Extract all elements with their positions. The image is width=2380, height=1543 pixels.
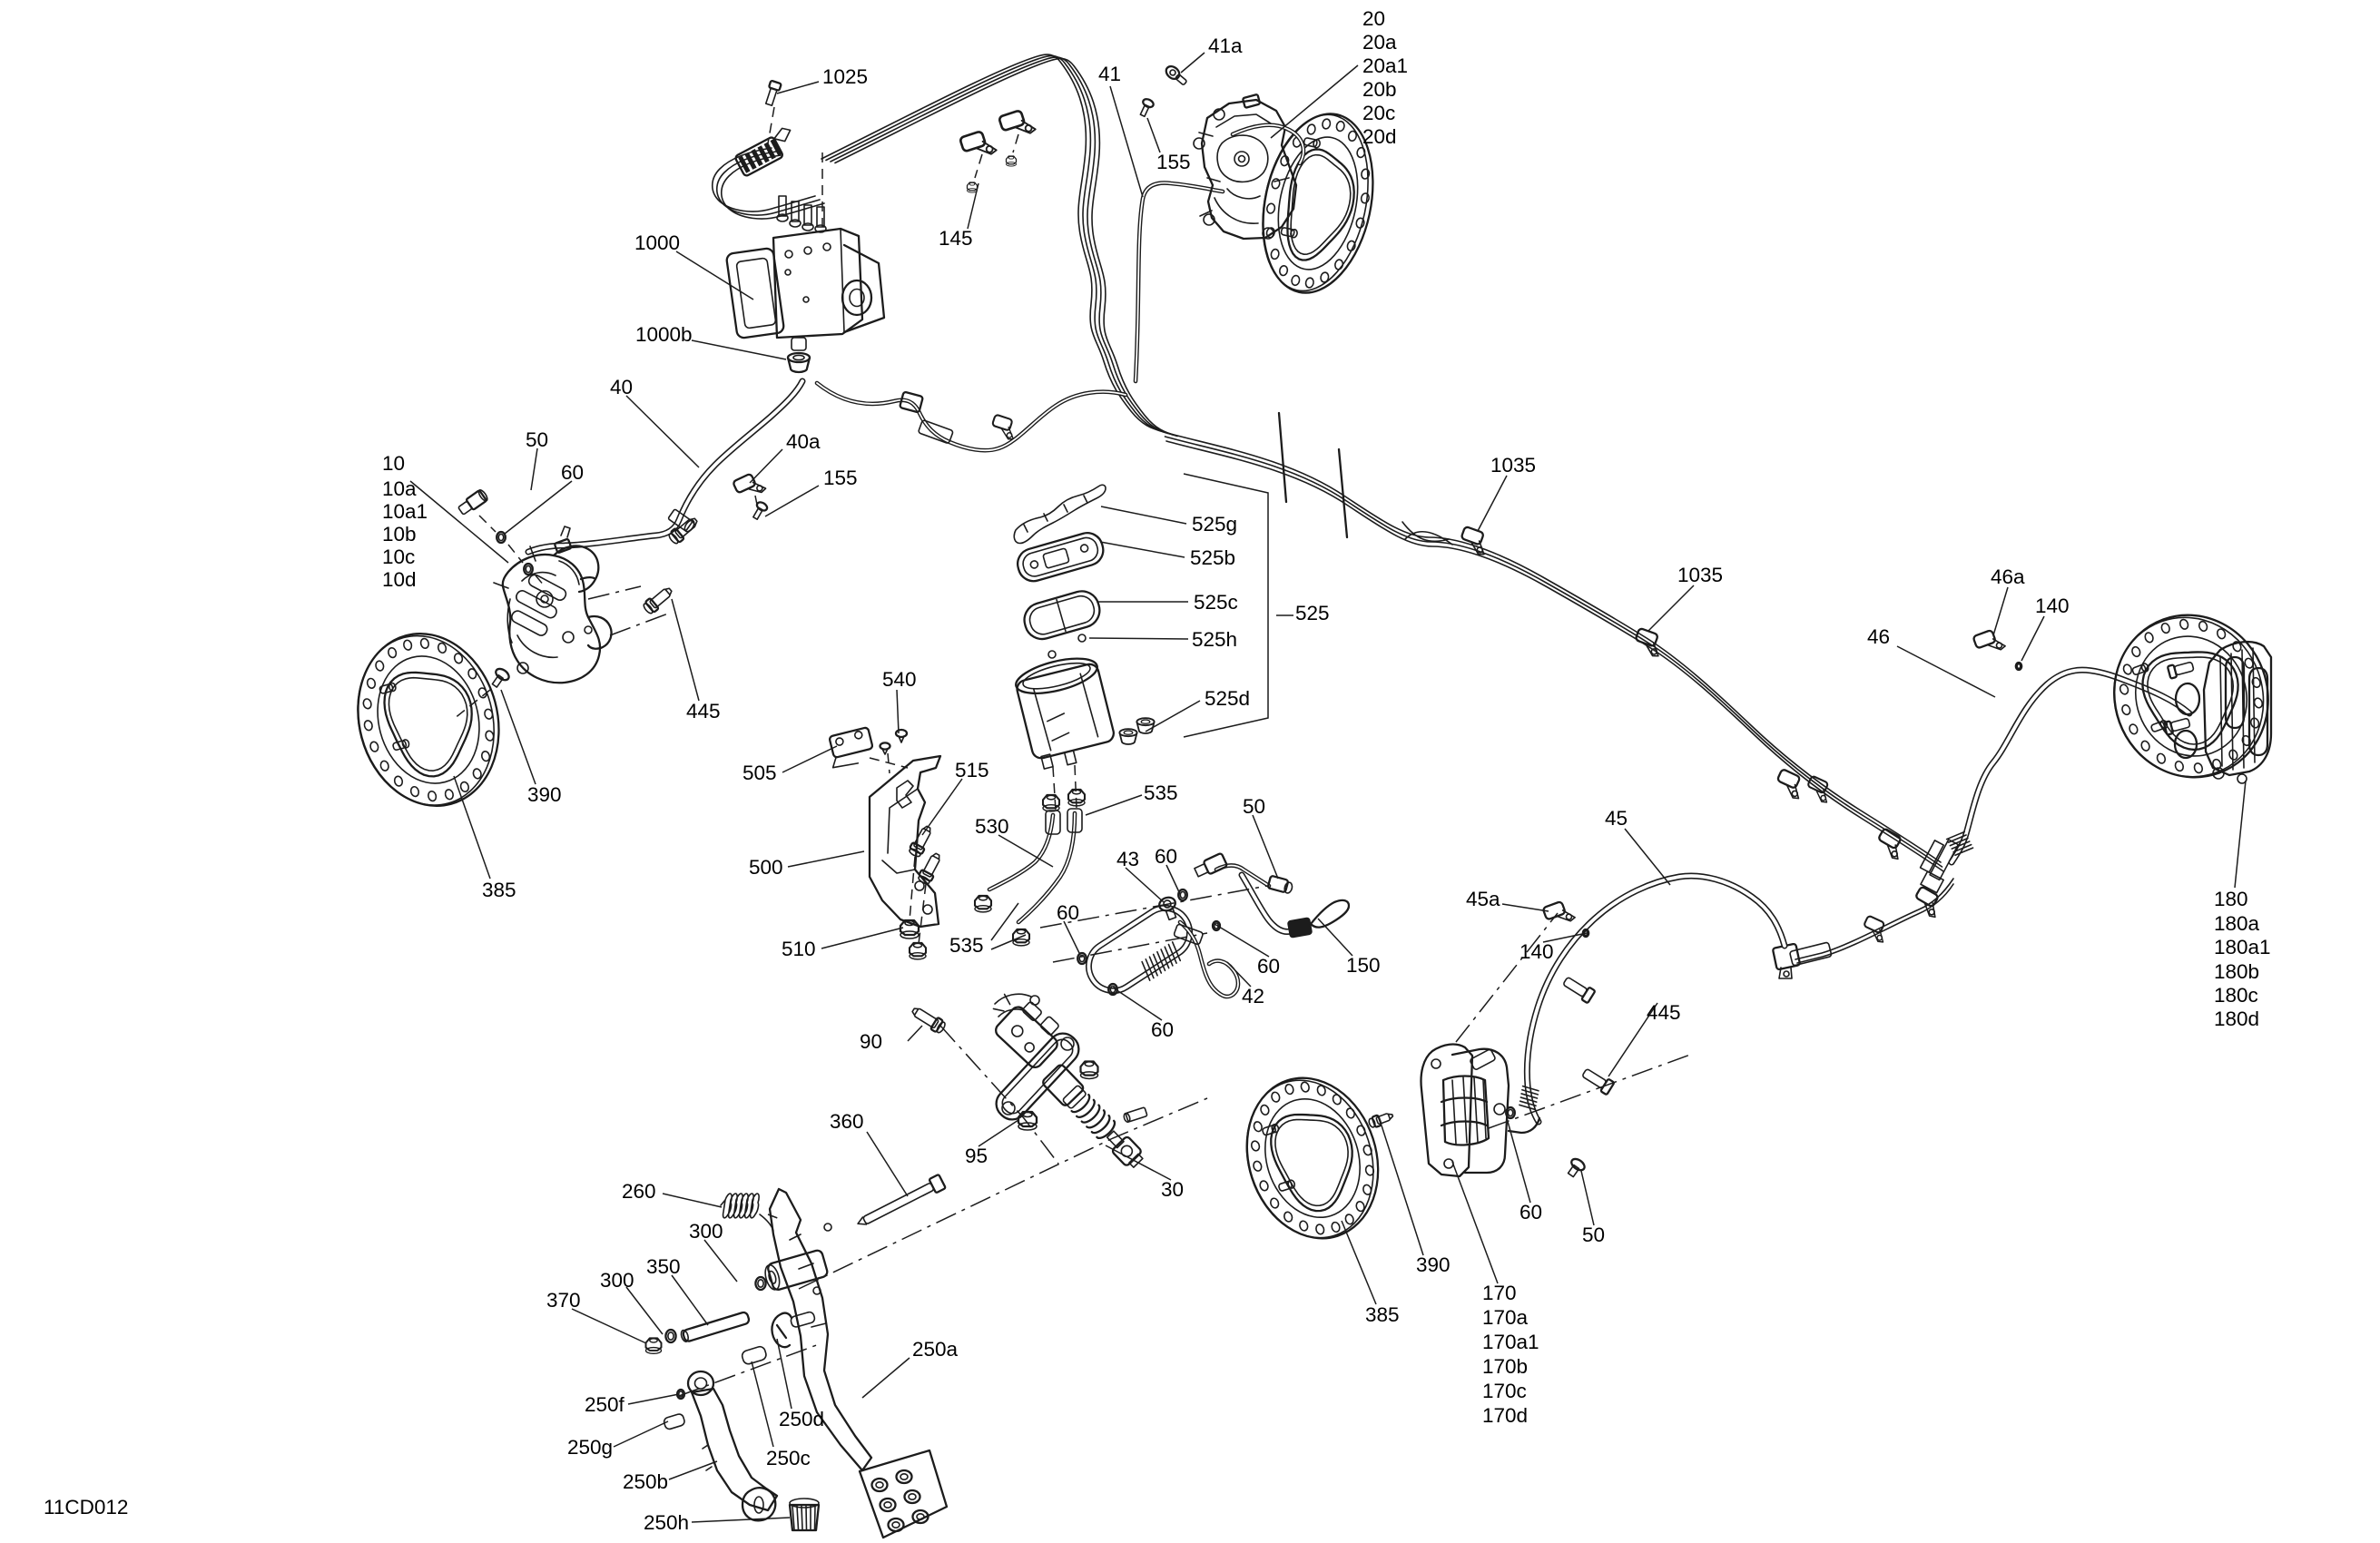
svg-text:350: 350 xyxy=(646,1255,681,1278)
svg-text:60: 60 xyxy=(1155,845,1177,868)
svg-text:50: 50 xyxy=(526,428,548,451)
svg-text:43: 43 xyxy=(1116,848,1139,870)
svg-text:10: 10 xyxy=(382,452,405,475)
svg-text:180d: 180d xyxy=(2214,1007,2259,1030)
svg-text:515: 515 xyxy=(955,759,989,781)
svg-text:370: 370 xyxy=(546,1289,581,1312)
svg-text:525: 525 xyxy=(1295,602,1330,624)
svg-text:155: 155 xyxy=(1156,151,1191,173)
svg-text:500: 500 xyxy=(749,856,783,879)
svg-text:1000b: 1000b xyxy=(635,323,693,346)
svg-text:95: 95 xyxy=(965,1145,988,1167)
svg-text:42: 42 xyxy=(1242,985,1264,1007)
svg-text:10a1: 10a1 xyxy=(382,500,428,523)
svg-text:170d: 170d xyxy=(1482,1404,1528,1427)
svg-text:390: 390 xyxy=(1416,1253,1451,1276)
svg-text:46a: 46a xyxy=(1991,565,2025,588)
svg-text:180c: 180c xyxy=(2214,984,2258,1007)
svg-text:20d: 20d xyxy=(1362,125,1397,148)
svg-text:45: 45 xyxy=(1605,807,1628,830)
svg-text:300: 300 xyxy=(689,1220,723,1243)
svg-text:525d: 525d xyxy=(1205,687,1250,710)
svg-text:145: 145 xyxy=(939,227,973,250)
svg-text:20: 20 xyxy=(1362,7,1385,30)
svg-text:60: 60 xyxy=(1057,901,1079,924)
svg-text:525h: 525h xyxy=(1192,628,1237,651)
svg-text:30: 30 xyxy=(1161,1178,1184,1201)
svg-text:250a: 250a xyxy=(912,1338,959,1361)
svg-text:180a1: 180a1 xyxy=(2214,936,2271,958)
svg-text:11CD012: 11CD012 xyxy=(44,1496,128,1518)
svg-text:250h: 250h xyxy=(644,1511,689,1534)
svg-text:20a: 20a xyxy=(1362,31,1397,54)
svg-text:170b: 170b xyxy=(1482,1355,1528,1378)
svg-text:46: 46 xyxy=(1867,625,1890,648)
svg-text:1035: 1035 xyxy=(1490,454,1536,477)
svg-text:180b: 180b xyxy=(2214,960,2259,983)
svg-text:540: 540 xyxy=(882,668,917,691)
svg-text:10d: 10d xyxy=(382,568,417,591)
svg-text:525c: 525c xyxy=(1194,591,1238,614)
svg-text:535: 535 xyxy=(949,934,984,957)
svg-text:90: 90 xyxy=(860,1030,882,1053)
svg-text:180a: 180a xyxy=(2214,912,2260,935)
svg-text:445: 445 xyxy=(1647,1001,1681,1024)
svg-text:445: 445 xyxy=(686,700,721,722)
svg-text:60: 60 xyxy=(1519,1201,1542,1224)
svg-text:510: 510 xyxy=(782,938,816,960)
svg-text:180: 180 xyxy=(2214,888,2248,910)
svg-text:50: 50 xyxy=(1582,1224,1605,1246)
svg-text:1035: 1035 xyxy=(1677,564,1723,586)
svg-text:60: 60 xyxy=(1257,955,1280,978)
svg-text:530: 530 xyxy=(975,815,1009,838)
svg-text:1000: 1000 xyxy=(634,231,680,254)
svg-text:45a: 45a xyxy=(1466,888,1500,910)
svg-text:140: 140 xyxy=(1519,940,1554,963)
svg-text:170: 170 xyxy=(1482,1282,1517,1304)
svg-text:250c: 250c xyxy=(766,1447,811,1469)
svg-text:535: 535 xyxy=(1144,781,1178,804)
svg-text:1025: 1025 xyxy=(822,65,868,88)
svg-text:60: 60 xyxy=(561,461,584,484)
svg-text:140: 140 xyxy=(2035,595,2070,617)
svg-text:260: 260 xyxy=(622,1180,656,1203)
svg-text:385: 385 xyxy=(482,879,516,901)
svg-text:360: 360 xyxy=(830,1110,864,1133)
svg-text:250d: 250d xyxy=(779,1408,824,1430)
svg-text:250f: 250f xyxy=(585,1393,625,1416)
svg-text:505: 505 xyxy=(743,762,777,784)
svg-text:20a1: 20a1 xyxy=(1362,54,1408,77)
svg-text:300: 300 xyxy=(600,1269,634,1292)
svg-text:385: 385 xyxy=(1365,1303,1400,1326)
svg-text:250b: 250b xyxy=(623,1470,668,1493)
svg-text:10c: 10c xyxy=(382,545,415,568)
svg-text:150: 150 xyxy=(1346,954,1381,977)
svg-text:155: 155 xyxy=(823,467,858,489)
svg-text:60: 60 xyxy=(1151,1018,1174,1041)
svg-text:525b: 525b xyxy=(1190,546,1235,569)
svg-text:170c: 170c xyxy=(1482,1380,1527,1402)
svg-text:41a: 41a xyxy=(1208,34,1243,57)
svg-text:525g: 525g xyxy=(1192,513,1237,536)
svg-text:20b: 20b xyxy=(1362,78,1397,101)
svg-text:10a: 10a xyxy=(382,477,417,500)
svg-text:170a: 170a xyxy=(1482,1306,1529,1329)
svg-text:50: 50 xyxy=(1243,795,1265,818)
svg-text:20c: 20c xyxy=(1362,102,1395,124)
svg-text:250g: 250g xyxy=(567,1436,613,1459)
svg-text:41: 41 xyxy=(1098,63,1121,85)
svg-text:40: 40 xyxy=(610,376,633,398)
svg-text:40a: 40a xyxy=(786,430,821,453)
svg-text:10b: 10b xyxy=(382,523,417,545)
svg-text:390: 390 xyxy=(527,783,562,806)
svg-text:170a1: 170a1 xyxy=(1482,1331,1539,1353)
